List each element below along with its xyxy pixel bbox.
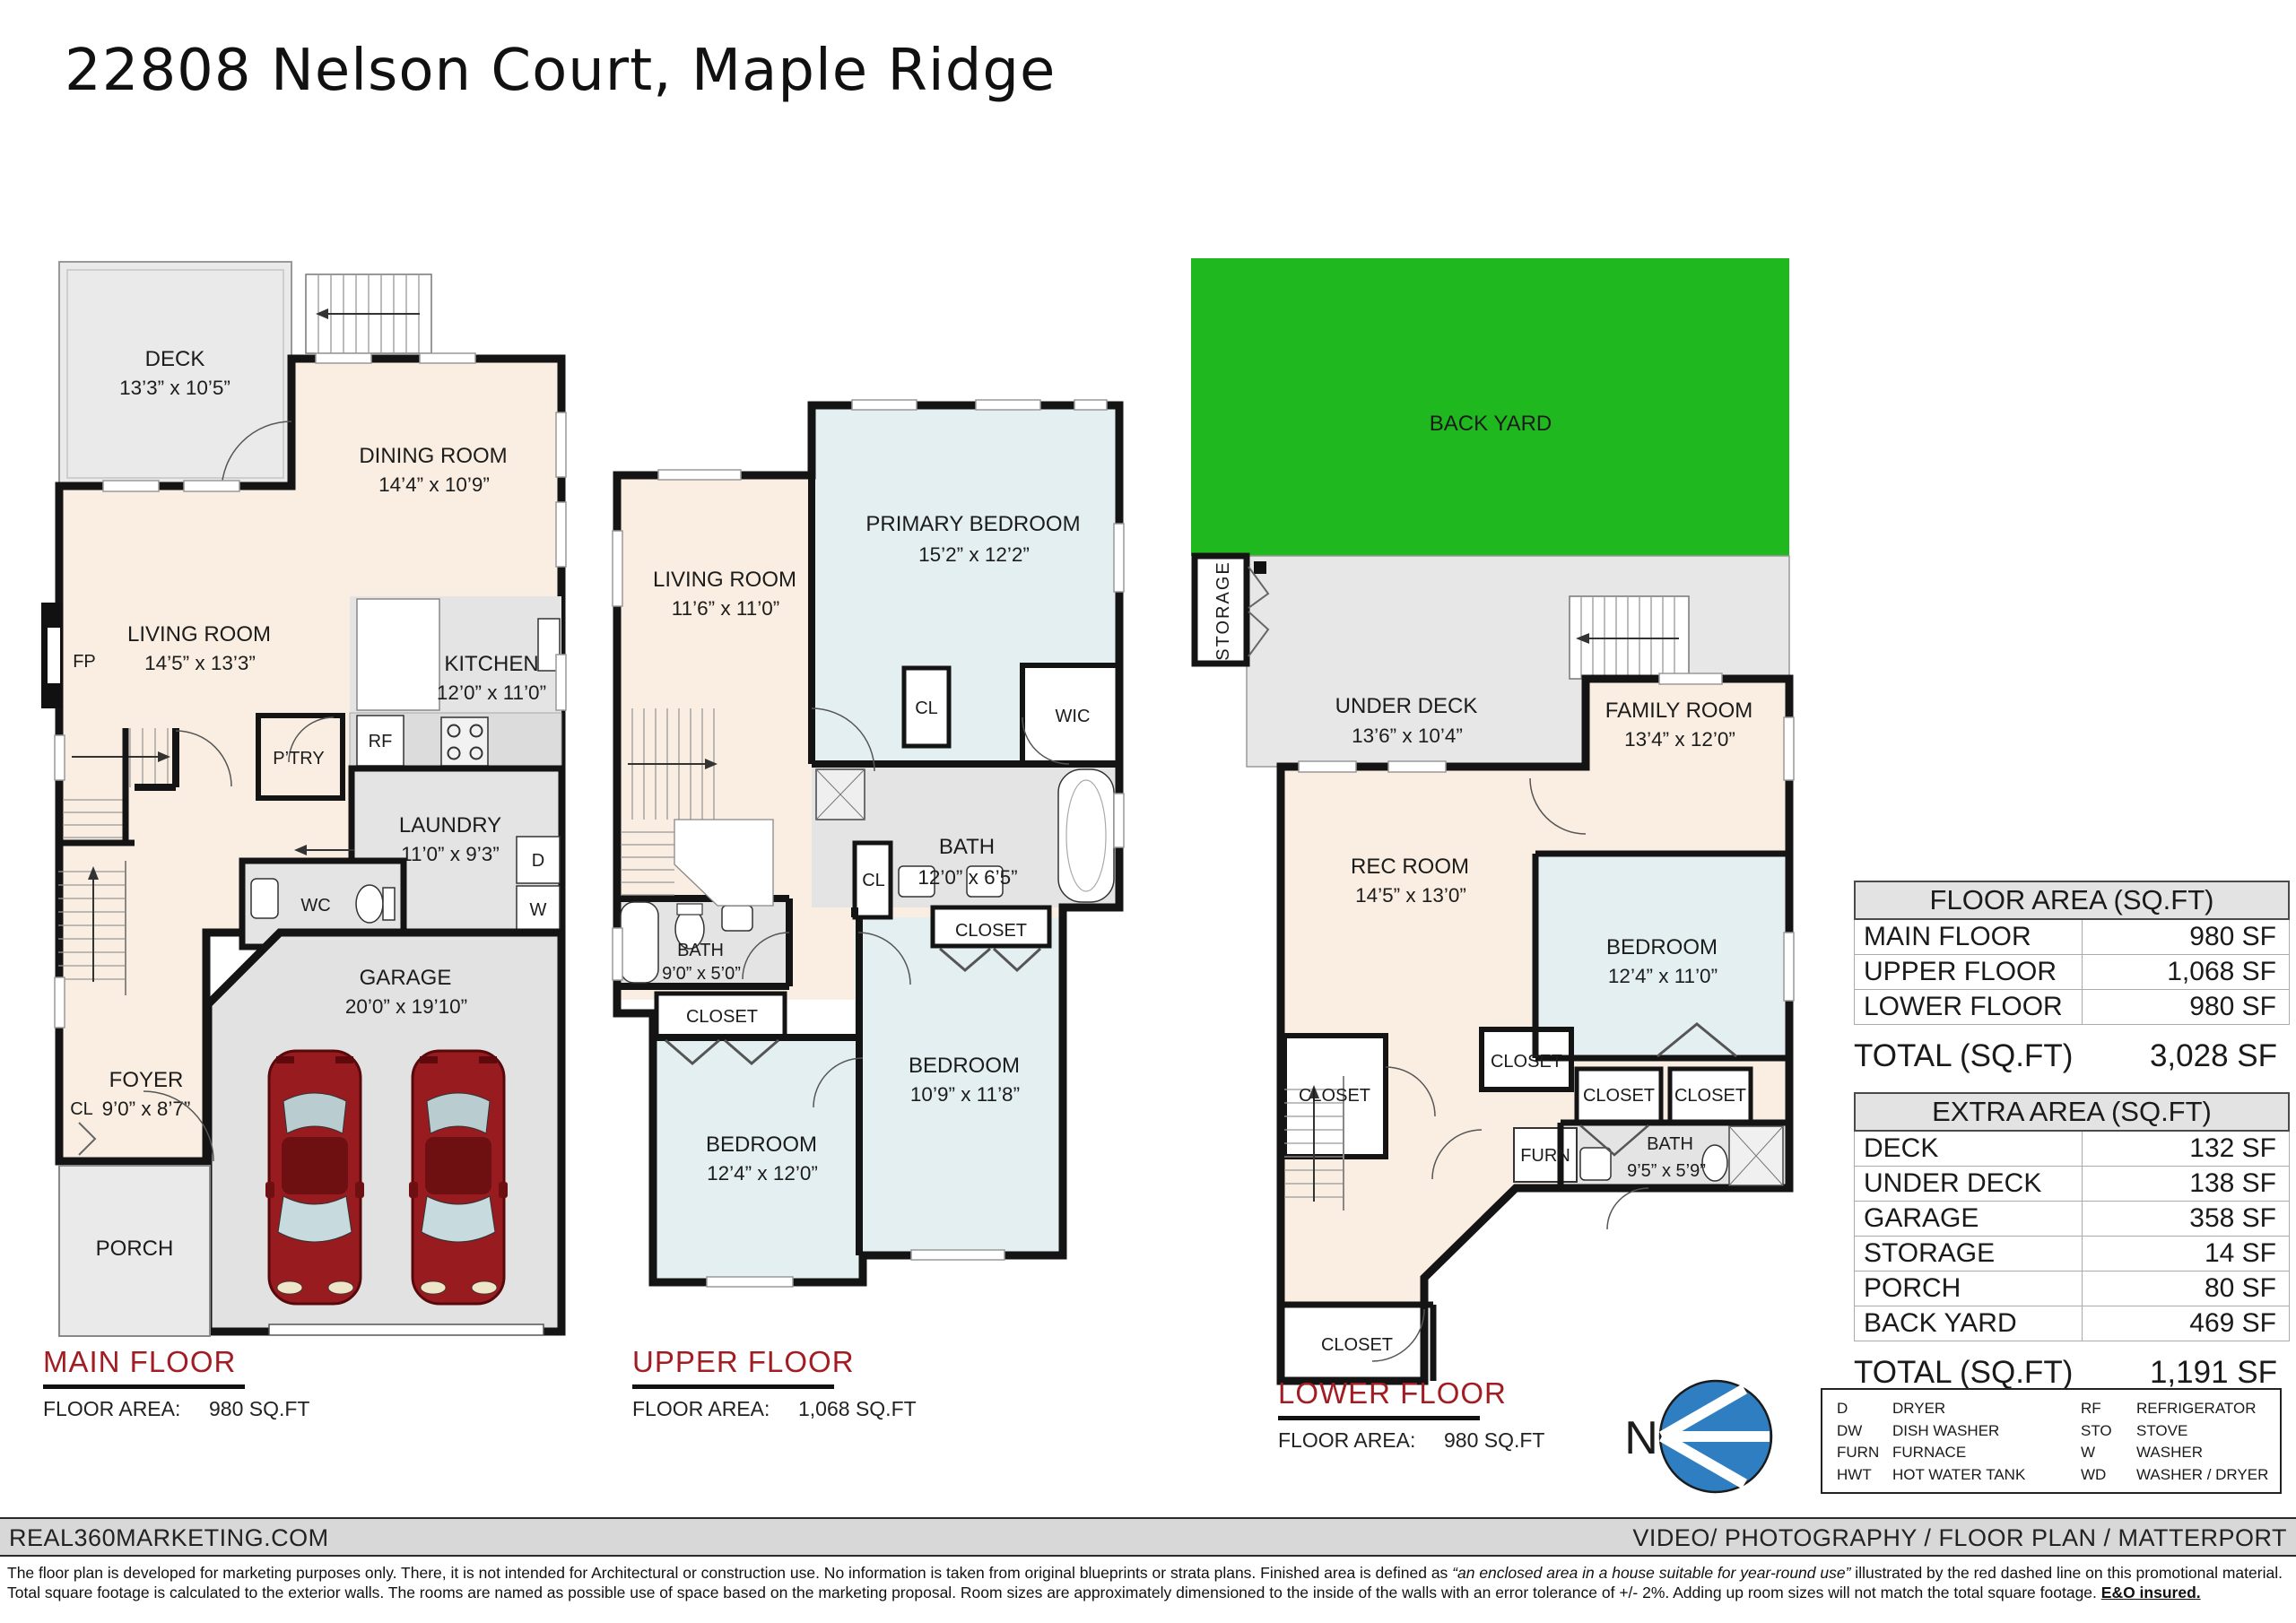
laundry-label: LAUNDRY (399, 813, 501, 838)
legend-label: HOT WATER TANK (1892, 1464, 2025, 1487)
cl-label: CL (70, 1099, 93, 1119)
divider (43, 1384, 245, 1389)
row-value: 80 SF (2082, 1271, 2289, 1306)
deck-dims: 13’3” x 10’5” (119, 377, 230, 399)
legend-item: RFREFRIGERATOR (2081, 1398, 2268, 1420)
extra-area-table-title: EXTRA AREA (SQ.FT) (1854, 1092, 2290, 1132)
table-row: MAIN FLOOR980 SF (1854, 920, 2290, 955)
table-row: PORCH80 SF (1854, 1271, 2290, 1306)
lower-floor-title: LOWER FLOOR (1278, 1376, 1544, 1410)
stove-icon (441, 717, 488, 766)
upper-floor-label-block: UPPER FLOOR FLOOR AREA:1,068 SQ.FT (632, 1345, 917, 1421)
wc-label: WC (300, 896, 330, 916)
storage-label: STORAGE (1213, 560, 1233, 660)
floor-plan-page: 22808 Nelson Court, Maple Ridge DECK 13’… (0, 0, 2296, 1623)
legend-item: WWASHER (2081, 1442, 2268, 1464)
total-value: 1,191 SF (2150, 1355, 2290, 1391)
legend-label: DISH WASHER (1892, 1420, 1999, 1443)
legend-abbr: RF (2081, 1398, 2136, 1420)
legend-item: DDRYER (1837, 1398, 2025, 1420)
table-row: DECK132 SF (1854, 1132, 2290, 1167)
legend-abbr: W (2081, 1442, 2136, 1464)
kitchen-label: KITCHEN (444, 652, 538, 676)
row-label: DECK (1855, 1132, 2082, 1166)
north-label: N (1624, 1412, 1658, 1464)
footer-bar: REAL360MARKETING.COM VIDEO/ PHOTOGRAPHY … (0, 1517, 2296, 1557)
disclaimer-part1: The floor plan is developed for marketin… (7, 1564, 1452, 1582)
table-row: STORAGE14 SF (1854, 1237, 2290, 1271)
main-floor-area-caption: FLOOR AREA: (43, 1397, 209, 1421)
upper-living-label: LIVING ROOM (653, 568, 796, 592)
north-compass: N (1610, 1369, 1798, 1513)
disclaimer-eo-insured: E&O insured. (2101, 1584, 2201, 1601)
row-value: 358 SF (2082, 1202, 2289, 1236)
legend-abbr: WD (2081, 1464, 2136, 1487)
garage-label: GARAGE (360, 966, 452, 990)
disclaimer-italic: “an enclosed area in a house suitable fo… (1452, 1564, 1850, 1582)
foyer-label: FOYER (109, 1068, 184, 1092)
bed-right-dims: 10’9” x 11’8” (910, 1083, 1020, 1106)
row-value: 1,068 SF (2082, 955, 2289, 989)
legend-item: FURNFURNACE (1837, 1442, 2025, 1464)
legend-label: DRYER (1892, 1398, 1945, 1420)
lower-bath-dims: 9’5” x 5’9” (1627, 1161, 1706, 1181)
total-label: TOTAL (SQ.FT) (1854, 1038, 2073, 1074)
bed-right-label: BEDROOM (909, 1054, 1020, 1078)
disclaimer-text: The floor plan is developed for marketin… (7, 1564, 2289, 1602)
lower-closet-left-label: CLOSET (1299, 1086, 1370, 1106)
legend-item: DWDISH WASHER (1837, 1420, 2025, 1443)
legend-abbr: D (1837, 1398, 1892, 1420)
extra-area-total: TOTAL (SQ.FT)1,191 SF (1854, 1355, 2290, 1391)
legend-label: WASHER / DRYER (2136, 1464, 2268, 1487)
dining-label: DINING ROOM (359, 444, 507, 468)
bath-hall-dims: 9’0” x 5’0” (662, 964, 741, 984)
row-label: GARAGE (1855, 1202, 2082, 1236)
fridge-label: RF (369, 732, 393, 751)
laundry-dims: 11’0” x 9’3” (401, 843, 500, 865)
stairs-to-deck (306, 274, 431, 353)
foyer-dims: 9’0” x 8’7” (102, 1098, 191, 1120)
row-value: 14 SF (2082, 1237, 2289, 1271)
wic-label: WIC (1056, 707, 1091, 726)
dryer-label: D (532, 851, 544, 871)
closet-left-label: CLOSET (686, 1007, 758, 1027)
room-deck: DECK 13’3” x 10’5” (59, 262, 291, 486)
washer-label: W (530, 900, 547, 920)
room-kitchen: RF KITCHEN 12’0” x 11’0” (350, 596, 561, 794)
living-label: LIVING ROOM (127, 622, 271, 647)
back-yard (1191, 258, 1789, 556)
bed-left-dims: 12’4” x 12’0” (707, 1162, 818, 1185)
underdeck-dims: 13’6” x 10’4” (1352, 725, 1463, 747)
legend-abbr: STO (2081, 1420, 2136, 1443)
lower-floor-plan: BACK YARD UNDER DECK 13’6” x 10’4” STORA… (1184, 256, 1812, 1385)
backyard-label: BACK YARD (1430, 412, 1552, 436)
legend-abbr: HWT (1837, 1464, 1892, 1487)
upper-living-dims: 11’6” x 11’0” (672, 597, 779, 620)
garage-door (269, 1324, 544, 1335)
row-value: 980 SF (2082, 920, 2289, 954)
divider (1278, 1416, 1480, 1420)
upper-floor-area-value: 1,068 SQ.FT (798, 1397, 917, 1420)
bath-main-dims: 12’0” x 6’5” (918, 866, 1017, 889)
row-label: UPPER FLOOR (1855, 955, 2082, 989)
furnace-label: FURN (1520, 1146, 1570, 1166)
room-bedroom-left (653, 1037, 863, 1282)
floor-area-table-title: FLOOR AREA (SQ.FT) (1854, 881, 2290, 920)
cl-hall-label: CL (862, 871, 885, 890)
car-icon (409, 1051, 508, 1304)
footer-services: VIDEO/ PHOTOGRAPHY / FLOOR PLAN / MATTER… (1632, 1524, 2287, 1552)
legend-abbr: FURN (1837, 1442, 1892, 1464)
cl-primary-label: CL (915, 699, 938, 718)
main-floor-title: MAIN FLOOR (43, 1345, 309, 1379)
row-label: PORCH (1855, 1271, 2082, 1306)
legend-label: FURNACE (1892, 1442, 1966, 1464)
lower-floor-area-value: 980 SQ.FT (1444, 1428, 1544, 1452)
table-row: GARAGE358 SF (1854, 1202, 2290, 1237)
wc-toilet-icon (356, 885, 383, 923)
lower-closet-mid-label: CLOSET (1491, 1052, 1562, 1072)
upper-floor-title: UPPER FLOOR (632, 1345, 917, 1379)
table-row: UPPER FLOOR1,068 SF (1854, 955, 2290, 990)
row-value: 469 SF (2082, 1306, 2289, 1341)
primary-dims: 15’2” x 12’2” (918, 543, 1030, 566)
extra-area-table: EXTRA AREA (SQ.FT) DECK132 SF UNDER DECK… (1854, 1092, 2290, 1391)
pantry-label: P’TRY (273, 749, 324, 768)
legend-label: WASHER (2136, 1442, 2203, 1464)
fp-label: FP (73, 652, 96, 672)
lower-floor-area-caption: FLOOR AREA: (1278, 1428, 1444, 1453)
footer-website: REAL360MARKETING.COM (9, 1524, 329, 1552)
row-label: MAIN FLOOR (1855, 920, 2082, 954)
page-title: 22808 Nelson Court, Maple Ridge (65, 38, 1056, 104)
lower-closet-bottom-label: CLOSET (1321, 1335, 1393, 1355)
table-row: BACK YARD469 SF (1854, 1306, 2290, 1341)
main-floor-label-block: MAIN FLOOR FLOOR AREA:980 SQ.FT (43, 1345, 309, 1421)
main-floor-area-value: 980 SQ.FT (209, 1397, 309, 1420)
lower-bed-label: BEDROOM (1606, 935, 1718, 959)
lower-closet-b-label: CLOSET (1674, 1086, 1746, 1106)
main-floor-plan: DECK 13’3” x 10’5” RF (36, 256, 583, 1345)
row-label: UNDER DECK (1855, 1167, 2082, 1201)
closet-right-label: CLOSET (955, 921, 1027, 941)
divider (632, 1384, 834, 1389)
row-value: 980 SF (2082, 990, 2289, 1024)
legend-abbr: DW (1837, 1420, 1892, 1443)
legend-label: STOVE (2136, 1420, 2187, 1443)
rec-dims: 14’5” x 13’0” (1355, 884, 1466, 907)
garage-dims: 20’0” x 19’10” (345, 995, 467, 1018)
total-label: TOTAL (SQ.FT) (1854, 1355, 2073, 1391)
legend-item: WDWASHER / DRYER (2081, 1464, 2268, 1487)
row-value: 138 SF (2082, 1167, 2289, 1201)
car-icon (265, 1051, 364, 1304)
bed-left-label: BEDROOM (706, 1133, 817, 1157)
living-dims: 14’5” x 13’3” (144, 652, 256, 674)
table-row: UNDER DECK138 SF (1854, 1167, 2290, 1202)
bath-main-label: BATH (939, 835, 995, 859)
legend-box: DDRYER DWDISH WASHER FURNFURNACE HWTHOT … (1821, 1388, 2282, 1494)
bath-hall-label: BATH (677, 941, 724, 960)
dining-dims: 14’4” x 10’9” (378, 473, 490, 496)
wc-sink-icon (251, 879, 278, 918)
kitchen-dims: 12’0” x 11’0” (437, 681, 546, 704)
row-label: STORAGE (1855, 1237, 2082, 1271)
row-label: BACK YARD (1855, 1306, 2082, 1341)
row-label: LOWER FLOOR (1855, 990, 2082, 1024)
lower-bed-dims: 12’4” x 11’0” (1608, 965, 1718, 987)
family-label: FAMILY ROOM (1605, 699, 1752, 723)
underdeck-label: UNDER DECK (1335, 694, 1478, 718)
lower-exterior-stairs (1570, 596, 1689, 679)
room-porch: PORCH (59, 1166, 210, 1336)
primary-label: PRIMARY BEDROOM (865, 512, 1080, 536)
upper-floor-plan: LIVING ROOM 11’6” x 11’0” PRIMARY BEDROO… (610, 395, 1130, 1291)
table-row: LOWER FLOOR980 SF (1854, 990, 2290, 1025)
legend-label: REFRIGERATOR (2136, 1398, 2257, 1420)
lower-bath-label: BATH (1647, 1134, 1693, 1154)
room-pantry: P’TRY (258, 716, 343, 798)
floor-area-table: FLOOR AREA (SQ.FT) MAIN FLOOR980 SF UPPE… (1854, 881, 2290, 1074)
floor-area-total: TOTAL (SQ.FT)3,028 SF (1854, 1038, 2290, 1074)
room-garage: GARAGE 20’0” x 19’10” (208, 933, 561, 1335)
legend-item: STOSTOVE (2081, 1420, 2268, 1443)
porch-label: PORCH (96, 1237, 174, 1261)
lower-floor-label-block: LOWER FLOOR FLOOR AREA:980 SQ.FT (1278, 1376, 1544, 1453)
lower-closet-a-label: CLOSET (1583, 1086, 1655, 1106)
deck-label: DECK (145, 347, 205, 371)
total-value: 3,028 SF (2150, 1038, 2290, 1074)
upper-floor-area-caption: FLOOR AREA: (632, 1397, 798, 1421)
rec-label: REC ROOM (1351, 855, 1469, 879)
family-dims: 13’4” x 12’0” (1624, 728, 1735, 751)
legend-item: HWTHOT WATER TANK (1837, 1464, 2025, 1487)
row-value: 132 SF (2082, 1132, 2289, 1166)
